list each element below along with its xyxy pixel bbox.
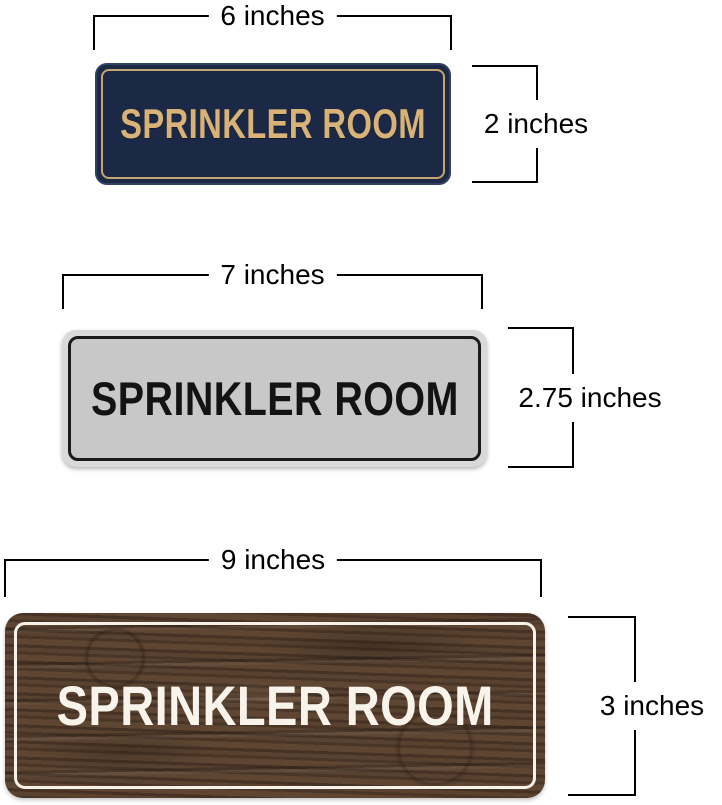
dimension-tick [568, 616, 636, 618]
sign-text: SPRINKLER ROOM [56, 678, 493, 734]
dimension-tick [472, 65, 538, 67]
sign-silver-black: SPRINKLER ROOM [62, 330, 487, 467]
width-dimension-label: 6 inches [208, 0, 336, 32]
height-dimension-line-2in: 2 inches [472, 65, 538, 183]
width-dimension-label: 7 inches [208, 259, 336, 291]
height-dimension-label: 2 inches [478, 100, 594, 148]
dimension-tick [540, 559, 542, 597]
height-dimension-label: 3 inches [594, 682, 710, 730]
sign-text: SPRINKLER ROOM [91, 375, 459, 422]
width-dimension-label: 9 inches [209, 544, 337, 576]
height-dimension-line-2-75in: 2.75 inches [508, 327, 574, 468]
width-dimension-line-9in: 9 inches [4, 559, 542, 561]
height-dimension-label: 2.75 inches [512, 374, 667, 422]
dimension-tick [508, 327, 574, 329]
dimension-tick [472, 181, 538, 183]
dimension-tick [450, 15, 452, 50]
dimension-tick [508, 466, 574, 468]
height-dimension-line-3in: 3 inches [568, 616, 636, 796]
dimension-tick [4, 559, 6, 597]
width-dimension-line-6in: 6 inches [93, 15, 452, 17]
dimension-tick [481, 274, 483, 309]
sign-text: SPRINKLER ROOM [120, 103, 426, 145]
sign-walnut-wood: SPRINKLER ROOM [5, 613, 545, 798]
dimension-tick [62, 274, 64, 309]
dimension-tick [568, 794, 636, 796]
width-dimension-line-7in: 7 inches [62, 274, 483, 276]
sign-navy-gold: SPRINKLER ROOM [95, 63, 451, 185]
product-dimension-diagram: 6 inches SPRINKLER ROOM 2 inches 7 inche… [0, 0, 722, 805]
dimension-tick [93, 15, 95, 50]
